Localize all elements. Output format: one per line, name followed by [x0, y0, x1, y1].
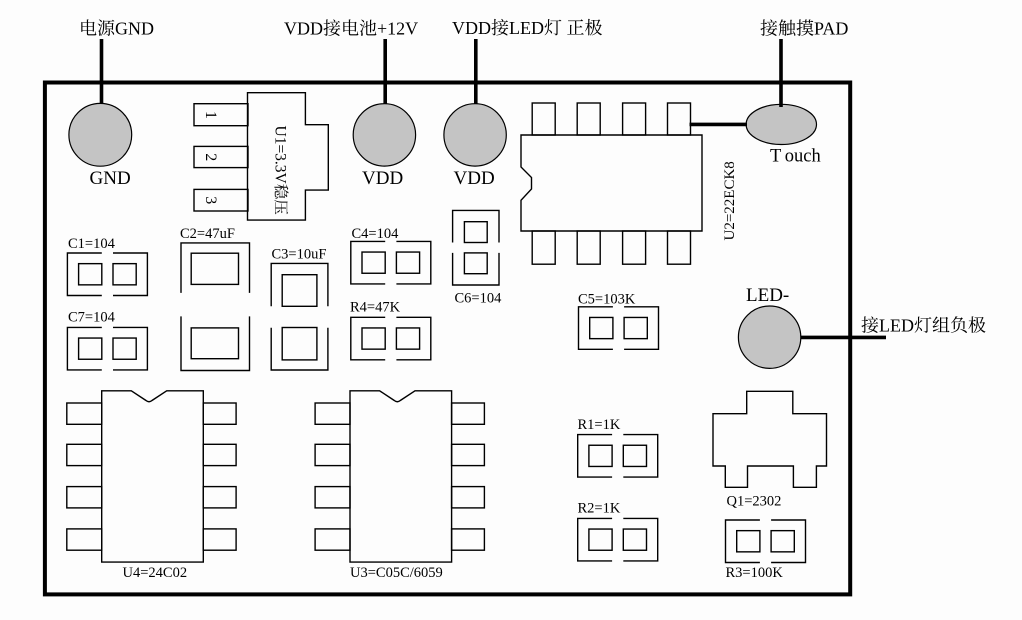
svg-text:R4=47K: R4=47K	[350, 300, 401, 316]
svg-text:C4=104: C4=104	[352, 226, 400, 242]
svg-text:U1=3.3V: U1=3.3V	[272, 126, 289, 185]
svg-text:GND: GND	[115, 19, 154, 39]
svg-text:+12V: +12V	[377, 19, 418, 39]
svg-text:U3=C05C/6059: U3=C05C/6059	[350, 565, 443, 581]
svg-text:LED: LED	[879, 316, 914, 336]
svg-text:C1=104: C1=104	[68, 236, 116, 252]
svg-text:2: 2	[202, 153, 219, 161]
svg-text:ouch: ouch	[785, 147, 821, 167]
svg-text:U4=24C02: U4=24C02	[123, 565, 188, 581]
svg-text:C7=104: C7=104	[68, 310, 116, 326]
svg-text:T: T	[770, 147, 781, 167]
svg-text:R2=1K: R2=1K	[578, 501, 621, 517]
svg-text:R1=1K: R1=1K	[578, 417, 621, 433]
svg-text:GND: GND	[90, 168, 131, 189]
svg-text:LED-: LED-	[746, 285, 789, 306]
svg-text:PAD: PAD	[814, 19, 848, 39]
svg-text:Q1=2302: Q1=2302	[727, 494, 782, 510]
svg-text:1: 1	[202, 111, 219, 119]
svg-text:VDD: VDD	[284, 19, 323, 39]
svg-text:C2=47uF: C2=47uF	[180, 226, 235, 242]
svg-text:C5=103K: C5=103K	[578, 291, 636, 307]
svg-text:LED: LED	[509, 18, 544, 38]
svg-text:C6=104: C6=104	[455, 290, 503, 306]
svg-text:C3=10uF: C3=10uF	[272, 247, 327, 263]
svg-text:VDD: VDD	[452, 18, 491, 38]
svg-text:3: 3	[202, 196, 219, 204]
svg-text:VDD: VDD	[362, 168, 403, 189]
svg-text:U2=22ECK8: U2=22ECK8	[722, 161, 738, 240]
svg-text:VDD: VDD	[454, 168, 495, 189]
svg-text:R3=100K: R3=100K	[726, 565, 784, 581]
